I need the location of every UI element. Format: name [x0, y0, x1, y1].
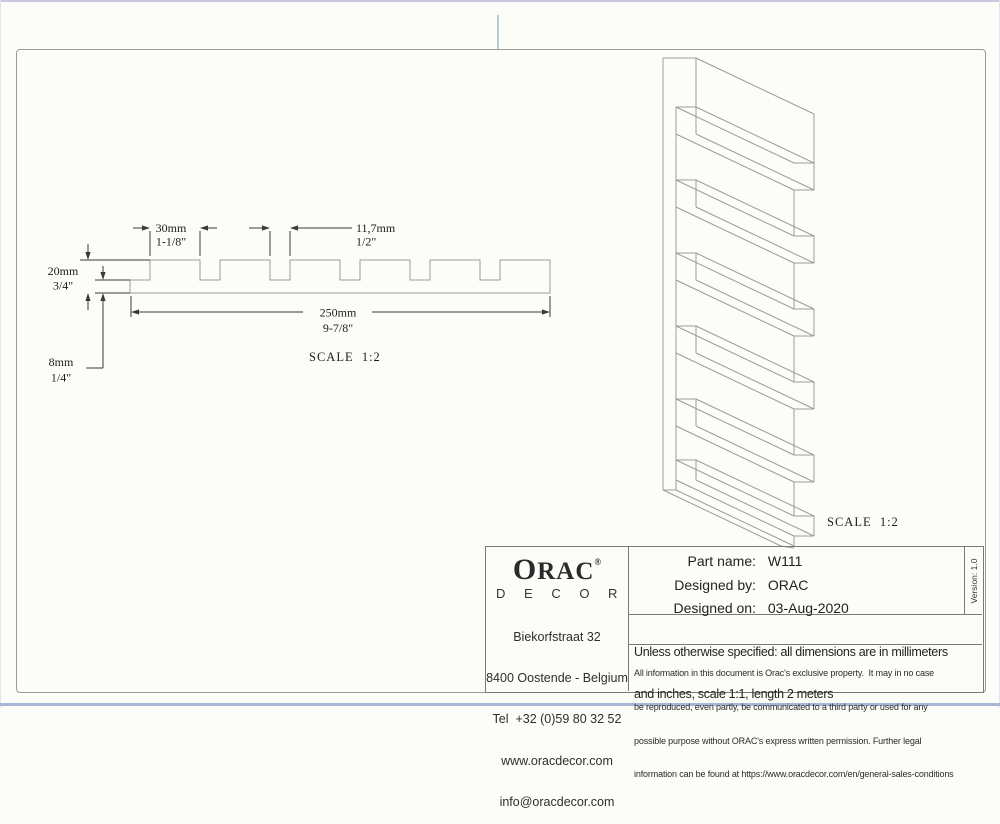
scale-label-isometric: SCALE 1:2	[827, 515, 899, 529]
designed-by-label: Designed by:	[628, 575, 756, 595]
field-designed-on: Designed on: 03-Aug-2020	[628, 598, 958, 618]
field-designed-by: Designed by: ORAC	[628, 575, 958, 595]
dim-base-thickness-mm: 8mm	[49, 355, 74, 369]
legal-line-4: information can be found at https://www.…	[634, 769, 980, 780]
logo-initial: O	[513, 553, 537, 586]
logo-orac-wordmark: ORAC®	[486, 549, 628, 585]
address-street: Biekorfstraat 32	[486, 631, 628, 645]
address-city: 8400 Oostende - Belgium	[486, 672, 628, 686]
legal-line-1: All information in this document is Orac…	[634, 668, 980, 679]
part-name-value: W111	[768, 551, 803, 571]
isometric-view	[663, 58, 814, 548]
logo-rest: RAC	[537, 558, 594, 585]
dim-height-inch: 3/4"	[53, 279, 73, 293]
version-cell: Version: 1.0	[965, 546, 982, 614]
address-phone: Tel +32 (0)59 80 32 52	[486, 713, 628, 727]
legal-line-3: possible purpose without ORAC's express …	[634, 736, 980, 747]
dim-slat-width-inch: 1-1/8"	[156, 235, 186, 249]
designed-by-value: ORAC	[768, 575, 808, 595]
dim-groove-width-mm: 11,7mm	[356, 221, 396, 235]
field-part-name: Part name: W111	[628, 551, 958, 571]
part-name-label: Part name:	[628, 551, 756, 571]
dim-slat-width-mm: 30mm	[156, 221, 187, 235]
designed-on-value: 03-Aug-2020	[768, 598, 849, 618]
dim-total-width-inch: 9-7/8"	[323, 321, 353, 335]
profile-cross-section	[130, 260, 550, 293]
dimension-labels: 30mm 1-1/8" 11,7mm 1/2" 20mm 3/4" 8mm 1/…	[48, 221, 899, 529]
company-address: Biekorfstraat 32 8400 Oostende - Belgium…	[486, 603, 628, 824]
logo-decor-wordmark: D E C O R	[493, 586, 628, 601]
address-email: info@oracdecor.com	[486, 796, 628, 810]
version-label: Version: 1.0	[969, 546, 979, 616]
designed-on-label: Designed on:	[628, 598, 756, 618]
company-logo: ORAC® D E C O R	[486, 549, 628, 601]
dim-groove-width-inch: 1/2"	[356, 235, 376, 249]
scale-label-profile: SCALE 1:2	[309, 350, 381, 364]
dimension-lines	[80, 225, 550, 368]
address-website: www.oracdecor.com	[486, 755, 628, 769]
dim-total-width-mm: 250mm	[320, 306, 357, 320]
legal-disclaimer: All information in this document is Orac…	[634, 646, 980, 792]
registered-trademark-symbol: ®	[594, 557, 601, 567]
dim-height-mm: 20mm	[48, 264, 79, 278]
dim-base-thickness-inch: 1/4"	[51, 371, 71, 385]
